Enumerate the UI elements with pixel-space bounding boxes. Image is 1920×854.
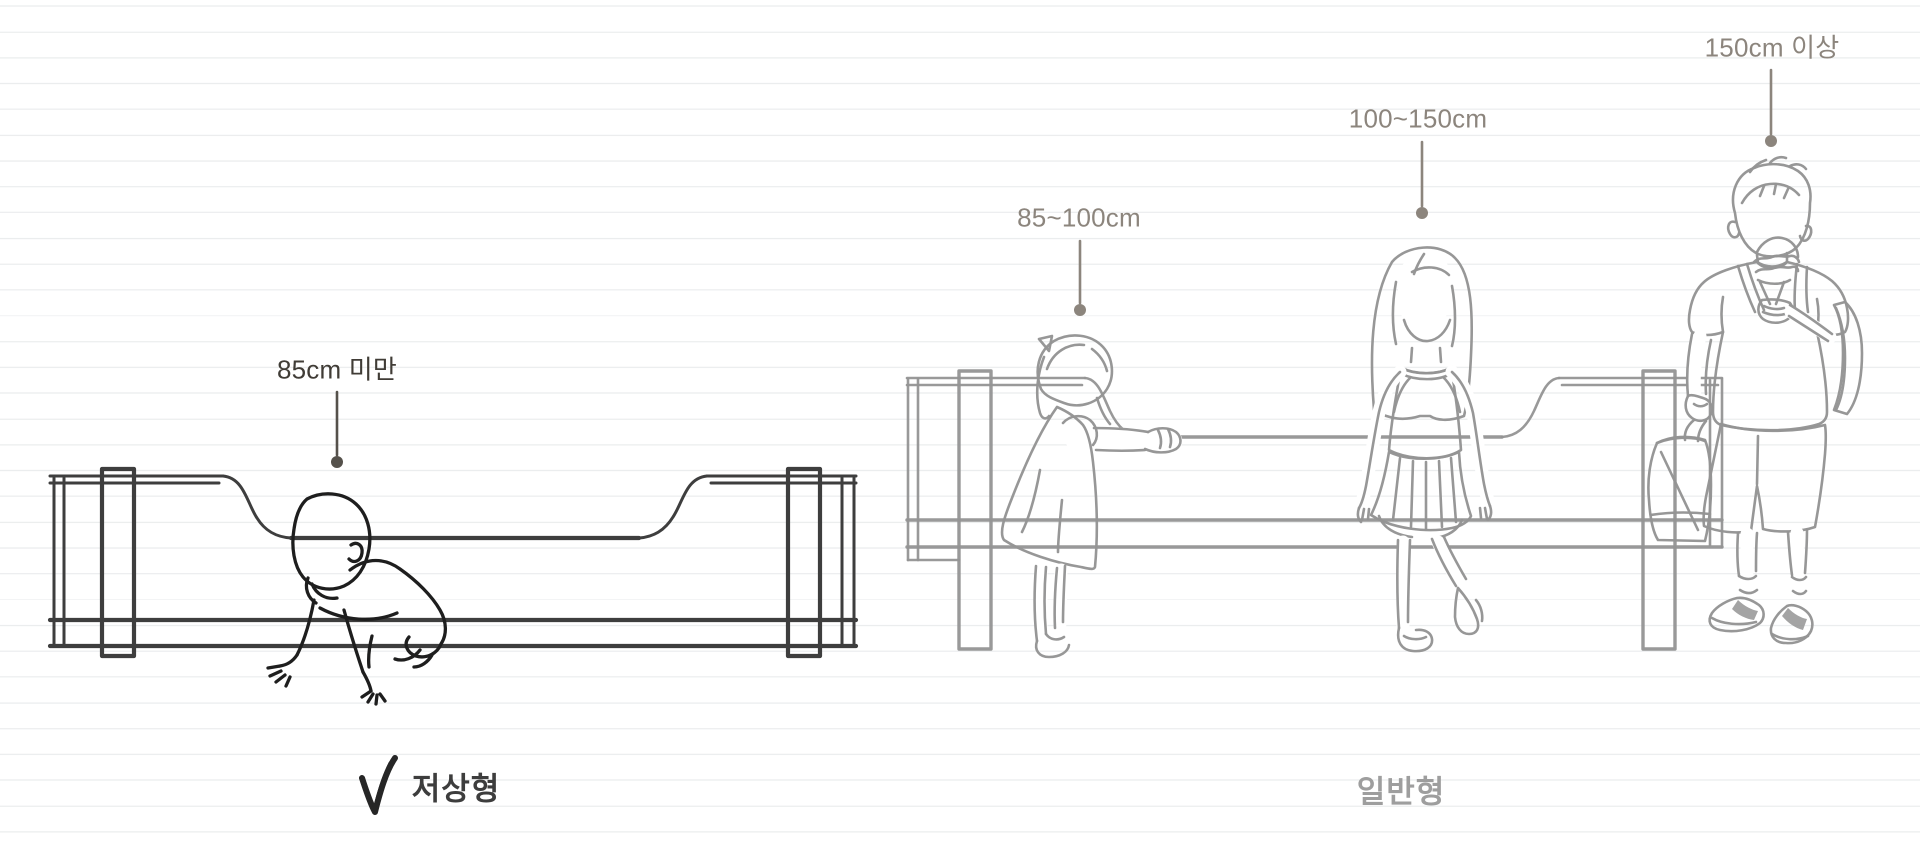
pointer-baby (331, 392, 343, 468)
low-bed-illustration (50, 469, 856, 656)
girl-figure (1358, 247, 1491, 651)
boy-figure (1648, 157, 1862, 643)
bed-type-label-low: 저상형 (412, 764, 501, 809)
bed-type-label-standard: 일반형 (1357, 767, 1446, 812)
height-label-girl: 100~150cm (1349, 104, 1487, 135)
height-label-toddler: 85~100cm (1017, 203, 1141, 234)
baby-figure (268, 494, 445, 704)
bed-height-comparison-diagram: 85cm 미만 85~100cm 100~150cm 150cm 이상 저상형 … (0, 0, 1920, 854)
height-label-boy: 150cm 이상 (1705, 28, 1840, 65)
pointer-boy (1765, 70, 1777, 147)
pointer-toddler (1074, 241, 1086, 316)
height-label-baby: 85cm 미만 (277, 350, 397, 387)
checkmark-icon (362, 758, 395, 812)
sketch-illustration (0, 0, 1920, 854)
pointer-girl (1416, 142, 1428, 219)
